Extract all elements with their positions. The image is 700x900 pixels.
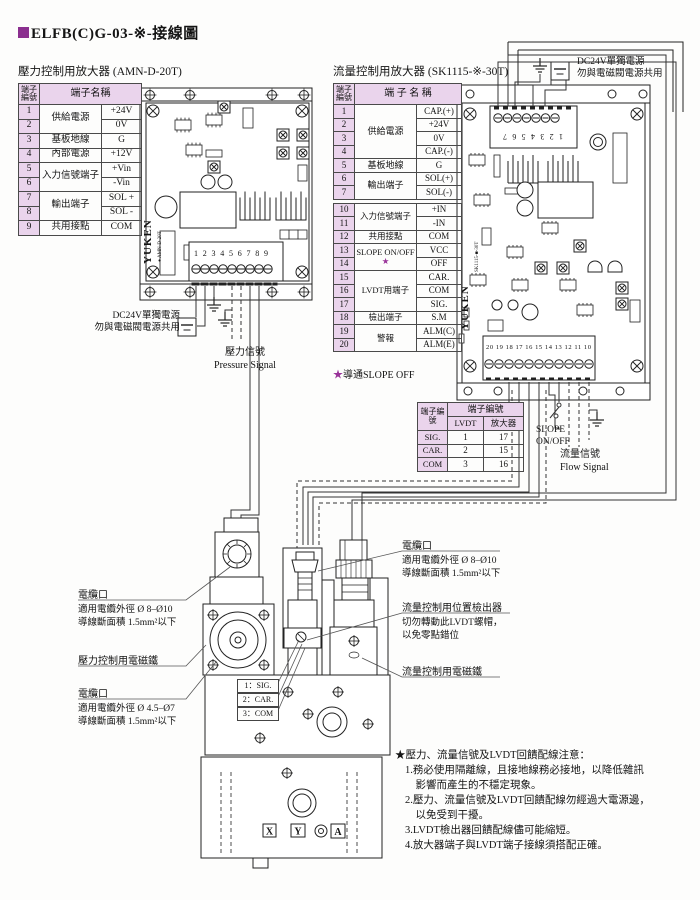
terminal-value: VCC: [417, 244, 462, 258]
callout-position-detector: 流量控制用位置檢出器 切勿轉動此LVDT螺帽， 以免零點錯位: [402, 599, 552, 643]
flow-board-model: SK1115-■-30T: [475, 242, 480, 272]
callout-line: 導線斷面積 1.5mm²以下: [402, 568, 542, 581]
power-note-line: 勿與電磁閥電源共用: [30, 322, 180, 334]
lvdt-pin: CAR.: [418, 444, 448, 458]
col-header-no: 端子編號: [334, 84, 355, 105]
terminal-no: 8: [19, 206, 40, 221]
terminal-value: ALM(E): [417, 338, 462, 352]
lvdt-pin-label: 1：SIG.: [237, 679, 279, 693]
pressure-amp-board: YUKEN ● AMN-D-20T 1 2 3 4 5 6 7 8 9: [140, 88, 312, 300]
terminal-row: 5基板地線G: [334, 159, 462, 173]
terminal-name: LVDT用端子: [355, 271, 417, 312]
terminal-row: 1供給電源+24V: [19, 105, 142, 120]
terminal-name: 內部電源: [40, 148, 102, 163]
lvdt-row: SIG.117: [418, 431, 524, 445]
terminal-row: 10入力信號端子+IN: [334, 203, 462, 217]
terminal-name: 共用接點: [40, 221, 102, 236]
terminal-no: 6: [334, 172, 355, 186]
pressure-signal-en: Pressure Signal: [205, 360, 285, 373]
callout-line: 導線斷面積 1.5mm²以下: [78, 716, 208, 729]
terminal-value: -Vin: [102, 177, 142, 192]
terminal-name: 入力信號端子: [355, 203, 417, 230]
callout-line: 切勿轉動此LVDT螺帽，: [402, 617, 552, 630]
terminal-value: G: [417, 159, 462, 173]
lvdt-row: CAR.215: [418, 444, 524, 458]
terminal-value: S.M: [417, 311, 462, 325]
callout-cable-port-lvdt: 電纜口 適用電纜外徑 Ø 8–Ø10 導線斷面積 1.5mm²以下: [402, 537, 542, 581]
notes-line: 3.LVDT檢出器回饋配線儘可能縮短。: [395, 823, 695, 838]
terminal-no: 5: [334, 159, 355, 173]
pressure-terminal-table: 端子編號端子名稱1供給電源+24V20V3基板地線G4內部電源+12V5入力信號…: [18, 83, 142, 236]
terminal-value: 0V: [417, 132, 462, 146]
lvdt-pin: SIG.: [418, 431, 448, 445]
power-note-line: DC24V單獨電源: [30, 310, 180, 322]
terminal-value: -IN: [417, 217, 462, 231]
terminal-row: 9共用接點COM: [19, 221, 142, 236]
terminal-value: SOL +: [102, 192, 142, 207]
terminal-no: 2: [19, 119, 40, 134]
terminal-value: +24V: [417, 118, 462, 132]
pressure-power-note: DC24V單獨電源 勿與電磁閥電源共用: [30, 310, 180, 335]
terminal-no: 1: [334, 105, 355, 119]
pressure-amp-wiring: [178, 286, 259, 518]
lvdt-no: 1: [448, 431, 484, 445]
star-icon: ★: [382, 256, 390, 266]
notes-line: 1.務必使用隔離線，且接地線務必接地，以降低雜訊: [395, 763, 695, 778]
col-header-no: 端子編號: [19, 84, 40, 105]
terminal-row: 15LVDT用端子CAR.: [334, 271, 462, 285]
terminal-value: CAP.(+): [417, 105, 462, 119]
lvdt-col-group: 端子編號: [448, 403, 524, 417]
terminal-row: 3基板地線G: [19, 134, 142, 149]
callout-line: 適用電纜外徑 Ø 8–Ø10: [78, 604, 208, 617]
callout-line: 以免零點錯位: [402, 630, 552, 643]
page-title: ELFB(C)G-03-※-接線圖: [18, 22, 199, 43]
terminal-no: 18: [334, 311, 355, 325]
terminal-value: +IN: [417, 203, 462, 217]
terminal-value: CAR.: [417, 271, 462, 285]
callout-pressure-solenoid: 壓力控制用電磁鐵: [78, 652, 158, 667]
notes-line: 4.放大器端子與LVDT端子接線須搭配正確。: [395, 838, 695, 853]
terminal-value: SIG.: [417, 298, 462, 312]
terminal-no: 1: [19, 105, 40, 120]
wiring-diagram-page: YUKEN ● AMN-D-20T 1 2 3 4 5 6 7 8 9: [0, 0, 700, 900]
terminal-name: 供給電源: [40, 105, 102, 134]
terminal-no: 20: [334, 338, 355, 352]
flow-signal-label: 流量信號 Flow Signal: [560, 449, 640, 474]
lvdt-pin-label: 3：COM: [237, 707, 279, 721]
terminal-value: COM: [417, 284, 462, 298]
terminal-name: 輸出端子: [355, 172, 417, 199]
terminal-table: 端子編號端子名稱1供給電源+24V20V3基板地線G4內部電源+12V5入力信號…: [18, 83, 142, 236]
terminal-no: 4: [334, 145, 355, 159]
terminal-row: 7輸出端子SOL +: [19, 192, 142, 207]
flow-bottom-terminal-numbers: 20 19 18 17 16 15 14 13 12 11 10: [486, 344, 591, 351]
flow-amp-board: 1 2 3 4 5 6 7 YUKEN SK1115-: [457, 42, 683, 400]
svg-text:YUKEN: YUKEN: [142, 219, 154, 264]
terminal-no: 19: [334, 325, 355, 339]
flow-signal-zh: 流量信號: [560, 449, 640, 462]
terminal-row: 1供給電源CAP.(+): [334, 105, 462, 119]
power-note-line: 勿與電磁閥電源共用: [577, 68, 687, 80]
terminal-no: 16: [334, 284, 355, 298]
svg-text:● AMN-D-20T: ● AMN-D-20T: [158, 231, 163, 262]
terminal-name: 共用接點: [355, 230, 417, 244]
lvdt-col-lvdt: LVDT: [448, 417, 484, 431]
flow-terminal-table: 端子編號端 子 名 稱1供給電源CAP.(+)2+24V30V4CAP.(-)5…: [333, 83, 462, 352]
callout-cable-port-solenoid: 電纜口 適用電纜外徑 Ø 4.5–Ø7 導線斷面積 1.5mm²以下: [78, 685, 208, 729]
terminal-no: 6: [19, 177, 40, 192]
pressure-terminal-numbers: 1 2 3 4 5 6 7 8 9: [194, 249, 268, 258]
col-header-name: 端 子 名 稱: [355, 84, 462, 105]
star-icon: ★: [333, 370, 343, 381]
terminal-row: 13SLOPE ON/OFF ★VCC: [334, 244, 462, 258]
notes-line: 影響而產生的不穩定現象。: [395, 778, 695, 793]
lvdt-row: COM316: [418, 458, 524, 472]
terminal-no: 10: [334, 203, 355, 217]
terminal-no: 12: [334, 230, 355, 244]
callout-title: 電纜口: [402, 537, 542, 552]
terminal-no: 3: [19, 134, 40, 149]
terminal-no: 4: [19, 148, 40, 163]
terminal-value: +24V: [102, 105, 142, 120]
terminal-name: 入力信號端子: [40, 163, 102, 192]
lvdt-col-no: 端子編號: [418, 403, 448, 431]
lvdt-mapping-table: 端子編號端子編號LVDT放大器SIG.117CAR.215COM316: [417, 402, 524, 472]
terminal-no: 2: [334, 118, 355, 132]
terminal-value: COM: [102, 221, 142, 236]
terminal-row: 5入力信號端子+Vin: [19, 163, 142, 178]
terminal-no: 9: [19, 221, 40, 236]
valve-assembly: X Y A: [201, 518, 390, 868]
pressure-signal-label: 壓力信號 Pressure Signal: [205, 347, 285, 372]
lvdt-table: 端子編號端子編號LVDT放大器SIG.117CAR.215COM316: [417, 402, 524, 472]
terminal-no: 14: [334, 257, 355, 271]
notes-title: ★壓力、流量信號及LVDT回饋配線注意：: [395, 748, 695, 763]
terminal-no: 13: [334, 244, 355, 258]
terminal-name: 供給電源: [355, 105, 417, 159]
terminal-value: +Vin: [102, 163, 142, 178]
terminal-table: 10入力信號端子+IN11-IN12共用接點COM13SLOPE ON/OFF …: [333, 203, 462, 353]
lvdt-pin: COM: [418, 458, 448, 472]
flow-signal-en: Flow Signal: [560, 462, 640, 475]
terminal-no: 3: [334, 132, 355, 146]
terminal-value: G: [102, 134, 142, 149]
amp-no: 17: [484, 431, 524, 445]
terminal-value: SOL(-): [417, 186, 462, 200]
terminal-row: 4內部電源+12V: [19, 148, 142, 163]
callout-title: 流量控制用位置檢出器: [402, 599, 552, 614]
amp-no: 15: [484, 444, 524, 458]
title-bullet-icon: [18, 27, 29, 38]
terminal-value: +12V: [102, 148, 142, 163]
col-header-name: 端子名稱: [40, 84, 142, 105]
terminal-no: 7: [19, 192, 40, 207]
terminal-row: 6輸出端子SOL(+): [334, 172, 462, 186]
lvdt-no: 2: [448, 444, 484, 458]
callout-line: 導線斷面積 1.5mm²以下: [78, 617, 208, 630]
terminal-name: 檢出端子: [355, 311, 417, 325]
port-y-label: Y: [294, 827, 302, 838]
slope-switch-label: SLOPE ON/OFF: [536, 424, 570, 449]
notes-line: 2.壓力、流量信號及LVDT回饋配線勿經過大電源邊，: [395, 793, 695, 808]
terminal-row: 12共用接點COM: [334, 230, 462, 244]
power-note-line: DC24V單獨電源: [577, 56, 687, 68]
terminal-name: 輸出端子: [40, 192, 102, 221]
terminal-value: ALM(C): [417, 325, 462, 339]
terminal-value: 0V: [102, 119, 142, 134]
terminal-row: 19警報ALM(C): [334, 325, 462, 339]
terminal-no: 11: [334, 217, 355, 231]
terminal-value: COM: [417, 230, 462, 244]
terminal-name: 基板地線: [355, 159, 417, 173]
terminal-value: SOL -: [102, 206, 142, 221]
terminal-value: OFF: [417, 257, 462, 271]
terminal-row: 18檢出端子S.M: [334, 311, 462, 325]
callout-title: 電纜口: [78, 586, 208, 601]
slope-footnote-text: 導通SLOPE OFF: [343, 370, 414, 381]
slope-label-line: ON/OFF: [536, 436, 570, 448]
port-x-label: X: [266, 827, 274, 838]
amp-no: 16: [484, 458, 524, 472]
callout-title: 電纜口: [78, 685, 208, 700]
lvdt-pin-label: 2：CAR.: [237, 693, 279, 707]
callout-line: 適用電纜外徑 Ø 8–Ø10: [402, 555, 542, 568]
callout-cable-port-pressure: 電纜口 適用電纜外徑 Ø 8–Ø10 導線斷面積 1.5mm²以下: [78, 586, 208, 630]
terminal-no: 5: [19, 163, 40, 178]
terminal-no: 15: [334, 271, 355, 285]
terminal-name: 基板地線: [40, 134, 102, 149]
terminal-value: CAP.(-): [417, 145, 462, 159]
terminal-name: 警報: [355, 325, 417, 352]
callout-flow-solenoid: 流量控制用電磁鐵: [402, 663, 482, 678]
callout-line: 適用電纜外徑 Ø 4.5–Ø7: [78, 703, 208, 716]
pressure-amp-heading: 壓力控制用放大器 (AMN-D-20T): [18, 63, 182, 79]
flow-power-note: DC24V單獨電源 勿與電磁閥電源共用: [577, 56, 687, 81]
pressure-signal-zh: 壓力信號: [205, 347, 285, 360]
terminal-table: 端子編號端 子 名 稱1供給電源CAP.(+)2+24V30V4CAP.(-)5…: [333, 83, 462, 200]
slope-label-line: SLOPE: [536, 424, 570, 436]
terminal-no: 17: [334, 298, 355, 312]
lvdt-col-amp: 放大器: [484, 417, 524, 431]
terminal-name: SLOPE ON/OFF ★: [355, 244, 417, 271]
page-title-text: ELFB(C)G-03-※-接線圖: [31, 26, 199, 42]
terminal-no: 7: [334, 186, 355, 200]
wiring-notes: ★壓力、流量信號及LVDT回饋配線注意：1.務必使用隔離線，且接地線務必接地，以…: [395, 748, 695, 853]
flow-amp-heading: 流量控制用放大器 (SK1115-※-30T): [333, 63, 508, 79]
lvdt-no: 3: [448, 458, 484, 472]
slope-footnote: ★導通SLOPE OFF: [333, 366, 414, 381]
terminal-value: SOL(+): [417, 172, 462, 186]
port-a-label: A: [334, 827, 342, 838]
notes-line: 以免受到干擾。: [395, 808, 695, 823]
